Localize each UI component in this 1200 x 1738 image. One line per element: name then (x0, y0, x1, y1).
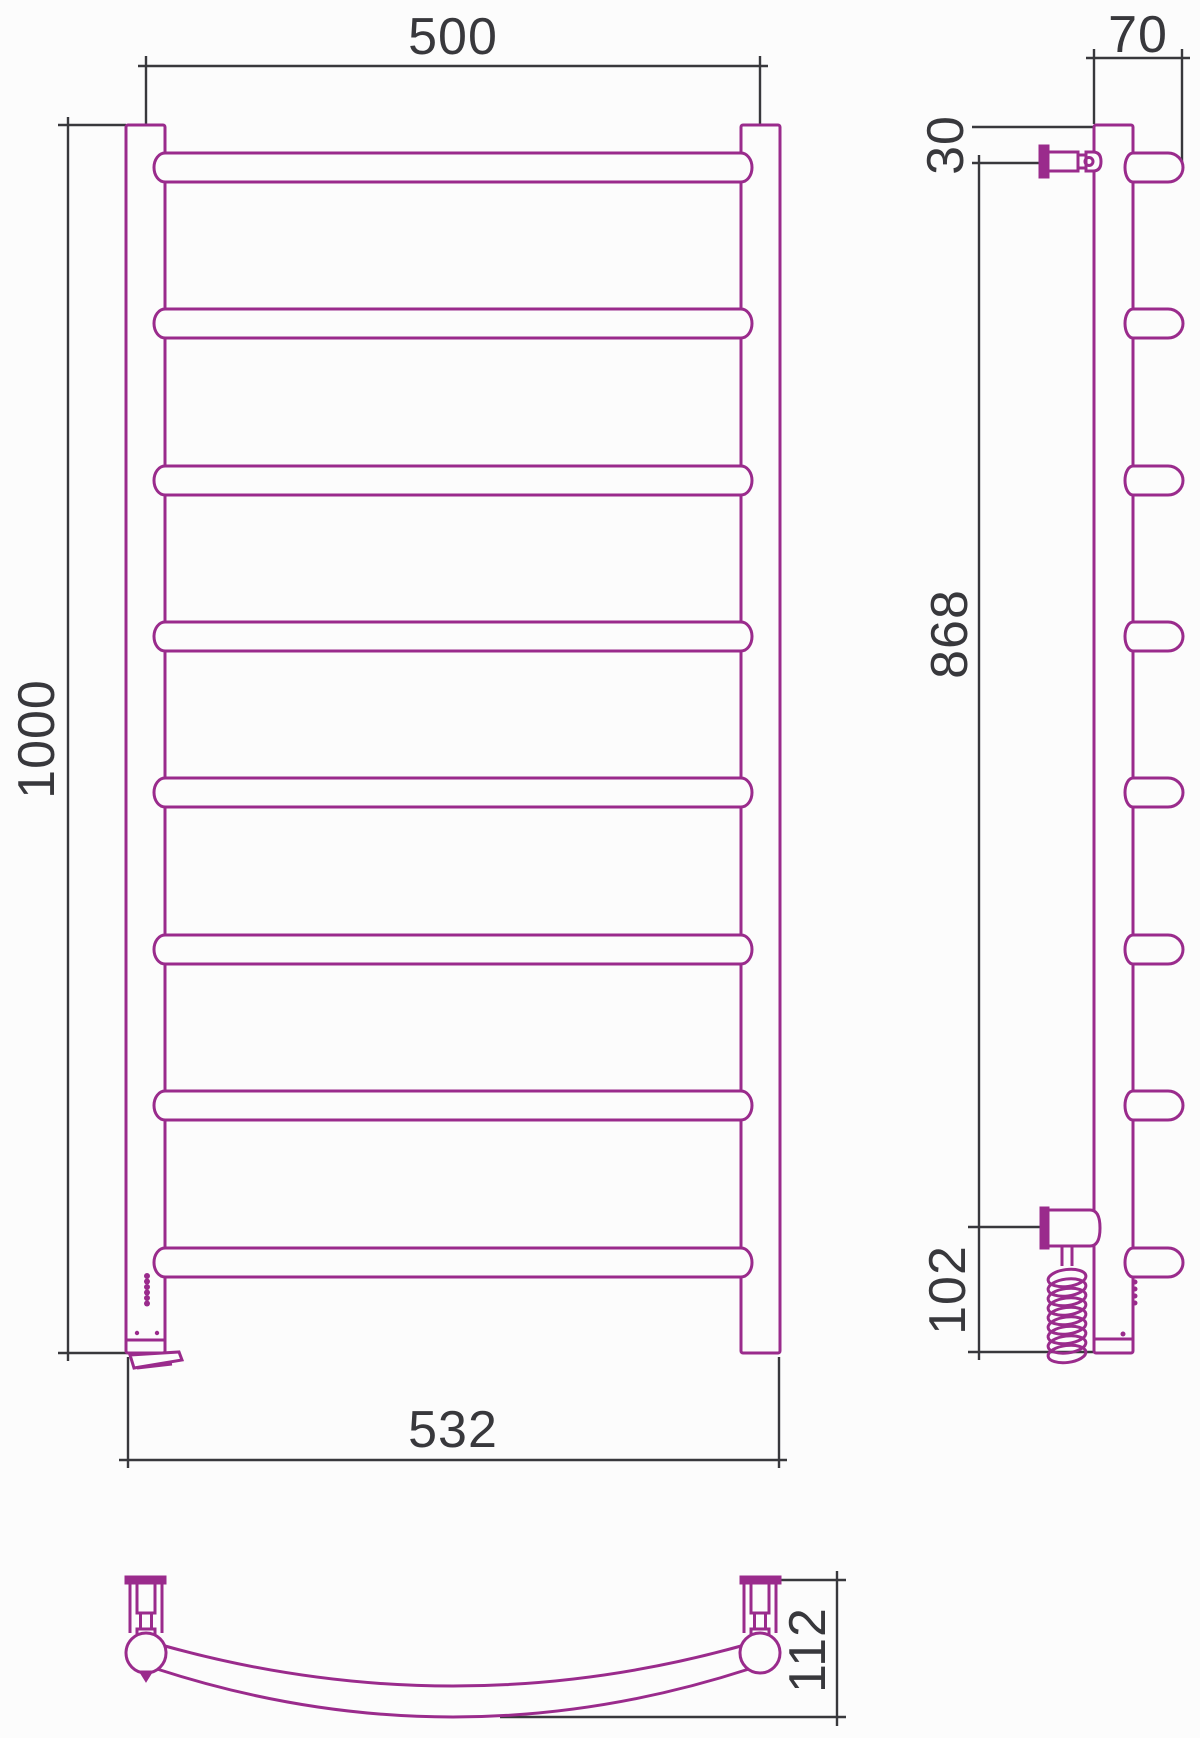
dim-overall-width-label: 532 (408, 1404, 498, 1456)
rung-end (1125, 1091, 1183, 1120)
rung (154, 309, 752, 338)
rung-end (1125, 1248, 1183, 1277)
front-view (126, 125, 780, 1368)
side-post (1094, 125, 1133, 1353)
dim-bottom-offset-label: 102 (922, 1245, 974, 1335)
dimension-lines (58, 49, 1190, 1726)
rung-end (1125, 466, 1183, 495)
heater-housing (1041, 1208, 1100, 1266)
drawing-canvas (0, 0, 1200, 1738)
bottom-view (126, 1577, 780, 1717)
side-view (1040, 125, 1183, 1365)
bottom-right-bracket (740, 1577, 780, 1673)
front-rungs (154, 153, 752, 1277)
curved-rung (157, 1646, 749, 1717)
dim-mount-span-label: 868 (924, 589, 976, 679)
rung (154, 153, 752, 182)
towel-rail-technical-drawing: 500 1000 532 70 30 868 102 112 (0, 0, 1200, 1738)
dim-wall-clearance-label: 112 (782, 1607, 834, 1693)
bottom-left-bracket (126, 1577, 166, 1680)
rung-end (1125, 153, 1183, 182)
coiled-power-cord (1047, 1267, 1087, 1365)
rung-end (1125, 309, 1183, 338)
heater-end-cap (130, 1352, 182, 1368)
rung (154, 935, 752, 964)
dim-depth-label: 70 (1108, 9, 1168, 61)
dim-500-lines (138, 56, 768, 124)
dim-1000-lines (58, 117, 127, 1361)
rung-end (1125, 935, 1183, 964)
rung (154, 1248, 752, 1277)
rung (154, 1091, 752, 1120)
rung (154, 778, 752, 807)
rung (154, 466, 752, 495)
dim-top-offset-label: 30 (920, 115, 972, 175)
rung (154, 622, 752, 651)
front-left-post (126, 125, 165, 1353)
dim-868-102-lines (968, 155, 1094, 1360)
dim-overall-height-label: 1000 (11, 679, 63, 799)
rung-end (1125, 622, 1183, 651)
front-right-post (741, 125, 780, 1353)
wall-bracket (1040, 146, 1101, 177)
dim-axes-width-label: 500 (408, 11, 498, 63)
rung-end (1125, 778, 1183, 807)
